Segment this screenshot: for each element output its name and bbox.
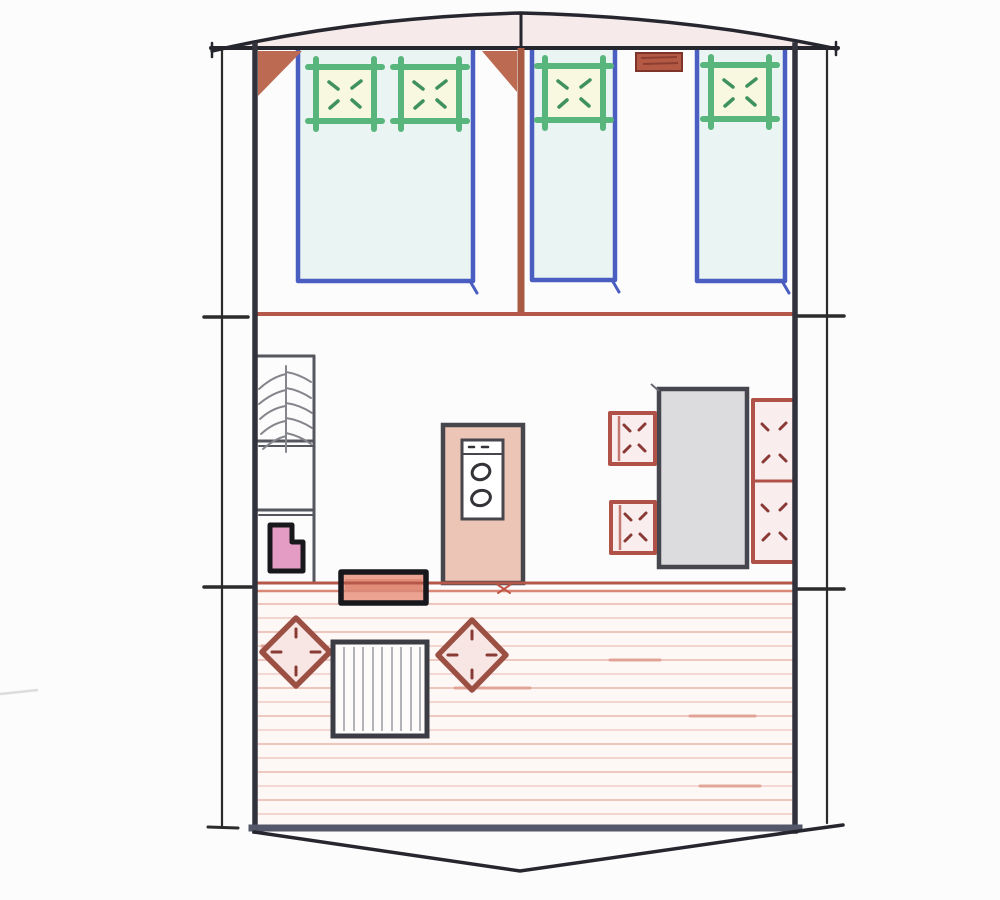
chair-upper — [610, 413, 655, 464]
wall-bench — [753, 400, 795, 562]
sleeping-area — [257, 48, 793, 314]
coat-hooks-sketch — [259, 366, 312, 452]
pillow-2 — [393, 59, 467, 129]
pillow-4 — [703, 57, 777, 127]
floor-plan-sketch — [0, 0, 1000, 900]
stove — [443, 425, 523, 583]
living-area — [257, 356, 795, 583]
pillow-3 — [537, 58, 611, 128]
deck — [258, 592, 794, 826]
floor-plan-canvas — [0, 0, 1000, 900]
dining-table — [659, 389, 747, 567]
corner-brace — [258, 51, 302, 96]
mini-fridge — [270, 525, 303, 571]
left-guy-foot — [208, 827, 238, 828]
dining-set — [610, 384, 795, 567]
center-post-brace — [482, 51, 517, 92]
slatted-table — [333, 642, 427, 736]
pillow-1 — [308, 59, 382, 129]
overhead-shelf — [636, 53, 682, 71]
scan-artifact — [0, 690, 38, 694]
entrance-curve — [254, 825, 843, 871]
chair-lower — [611, 502, 655, 553]
